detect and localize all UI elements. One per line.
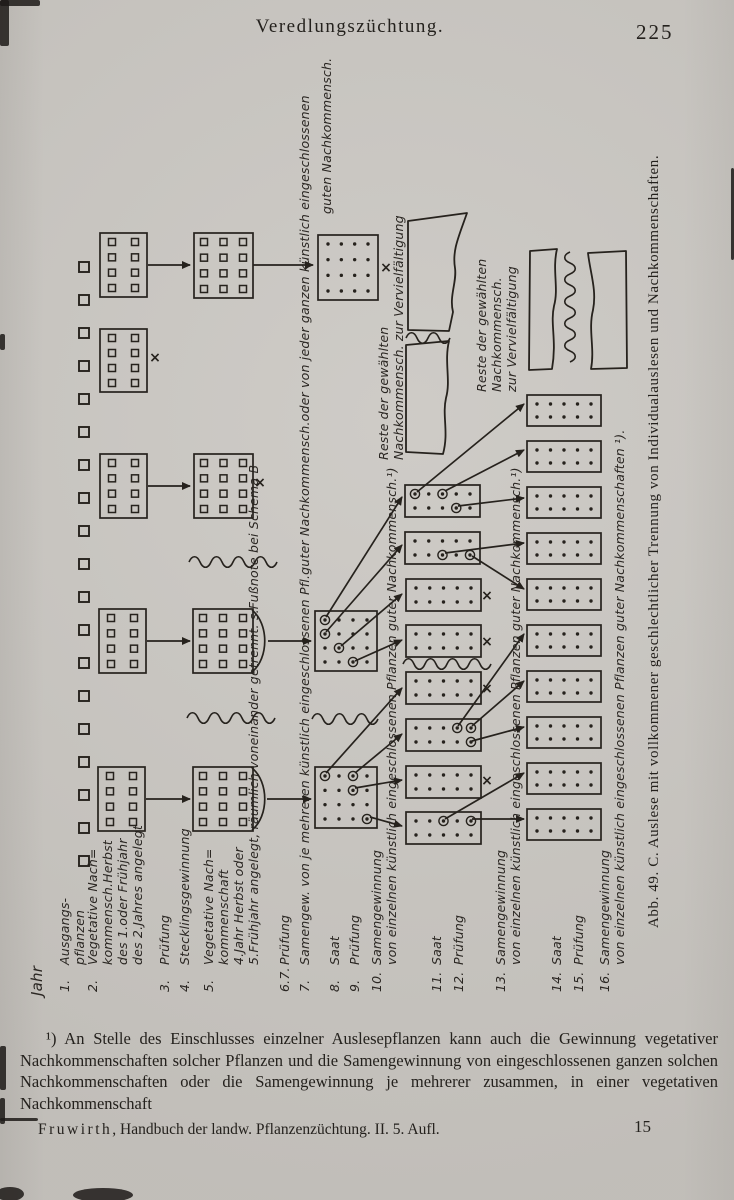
- figure-caption: Abb. 49. C. Auslese mit vollkommener ges…: [646, 155, 663, 928]
- plant-square: [132, 335, 139, 342]
- plant-dot: [428, 819, 431, 822]
- plant-square: [109, 285, 116, 292]
- plant-dot: [366, 242, 369, 245]
- plant-dot: [428, 600, 431, 603]
- plant-dot: [428, 726, 431, 729]
- start-plant-square: [79, 658, 89, 668]
- plant-dot: [455, 553, 458, 556]
- plant-dot: [562, 461, 565, 464]
- trial-plot-box: [315, 767, 377, 828]
- year-number: 8.: [327, 965, 342, 992]
- plant-dot: [576, 724, 579, 727]
- label-lines: Samengewinnungvon einzelnen künstlich ei…: [369, 467, 399, 965]
- plant-dot: [442, 833, 445, 836]
- clone-plot-box: [100, 329, 147, 392]
- plant-square: [132, 269, 139, 276]
- plant-dot: [549, 724, 552, 727]
- year-row-label-1.: 1.Ausgangs-pflanzen: [57, 898, 87, 992]
- label-lines: guten Nachkommensch.: [319, 58, 334, 214]
- plant-dot: [549, 553, 552, 556]
- plant-dot: [589, 691, 592, 694]
- plant-dot: [441, 506, 444, 509]
- selected-plant-circle: [320, 771, 329, 780]
- diagram-annotation-2: Reste der gewähltenNachkommensch.zur Ver…: [474, 259, 519, 392]
- year-number: 3.: [157, 965, 172, 992]
- trial-plot-box: [527, 717, 601, 748]
- plant-square: [220, 254, 227, 261]
- plant-dot: [562, 737, 565, 740]
- plant-square: [132, 506, 139, 513]
- year-number: 15.: [571, 965, 586, 992]
- plant-dot: [549, 494, 552, 497]
- plant-square: [130, 803, 137, 810]
- plant-dot: [414, 740, 417, 743]
- plant-dot: [456, 693, 459, 696]
- plant-dot: [414, 679, 417, 682]
- plant-dot: [340, 289, 343, 292]
- trial-plot-box: [318, 235, 378, 300]
- plant-square: [220, 239, 227, 246]
- label-lines: Jahr: [30, 966, 45, 996]
- plant-square: [131, 661, 138, 668]
- plant-dot: [469, 833, 472, 836]
- selected-plant-circle: [334, 643, 343, 652]
- plant-dot: [456, 819, 459, 822]
- plant-dot: [549, 737, 552, 740]
- plant-dot: [535, 415, 538, 418]
- plant-dot: [442, 773, 445, 776]
- plant-square: [109, 350, 116, 357]
- plant-square: [109, 365, 116, 372]
- plant-dot: [456, 600, 459, 603]
- plant-square: [132, 239, 139, 246]
- plant-dot: [562, 829, 565, 832]
- plant-dot: [576, 540, 579, 543]
- scan-artifact: [73, 1188, 133, 1200]
- book-page-scan: { "paper_color": "#cac7c2", "ink_color":…: [0, 0, 734, 1200]
- plant-dot: [442, 646, 445, 649]
- plant-dot: [535, 494, 538, 497]
- plant-square: [107, 773, 114, 780]
- trial-plot-box: [527, 625, 601, 656]
- multiplication-field-shape: [529, 249, 557, 370]
- plant-dot: [562, 415, 565, 418]
- plant-dot: [535, 507, 538, 510]
- selected-plant-circle: [453, 723, 462, 732]
- plant-dot: [576, 415, 579, 418]
- plant-dot: [326, 242, 329, 245]
- squiggle-separator: [403, 659, 491, 670]
- plant-dot: [562, 586, 565, 589]
- plant-dot: [469, 787, 472, 790]
- plant-dot: [562, 691, 565, 694]
- plant-dot: [535, 448, 538, 451]
- plant-dot: [576, 645, 579, 648]
- plant-dot: [441, 539, 444, 542]
- plant-square: [109, 269, 116, 276]
- plant-square: [130, 773, 137, 780]
- plant-square: [240, 270, 247, 277]
- label-lines: Vegetative Nach=kommensch.Herbstdes 1.od…: [85, 825, 145, 965]
- multiplication-field-shape: [408, 213, 467, 331]
- plant-dot: [428, 632, 431, 635]
- selected-plant-circle: [466, 723, 475, 732]
- plant-square: [109, 254, 116, 261]
- plant-square: [108, 661, 115, 668]
- start-plant-square: [79, 559, 89, 569]
- plant-dot: [456, 740, 459, 743]
- plant-dot: [589, 770, 592, 773]
- plant-dot: [549, 586, 552, 589]
- plant-dot: [469, 819, 472, 822]
- plant-square: [109, 506, 116, 513]
- plant-dot: [413, 553, 416, 556]
- plant-dot: [323, 660, 326, 663]
- plant-dot: [456, 646, 459, 649]
- plant-dot: [351, 646, 354, 649]
- plant-dot: [455, 492, 458, 495]
- plant-dot: [469, 726, 472, 729]
- plant-dot: [562, 402, 565, 405]
- plant-dot: [535, 724, 538, 727]
- year-row-label-16.: 16.Samengewinnungvon einzelnen künstlich…: [597, 429, 627, 992]
- plant-dot: [589, 553, 592, 556]
- plant-dot: [469, 600, 472, 603]
- plant-dot: [340, 274, 343, 277]
- plant-square: [132, 475, 139, 482]
- footnote-marker: ¹): [46, 1029, 56, 1048]
- plant-dot: [351, 803, 354, 806]
- selected-plant-circle: [466, 816, 475, 825]
- selected-plant-circle: [438, 489, 447, 498]
- plant-dot: [323, 803, 326, 806]
- plant-dot: [562, 540, 565, 543]
- year-row-label-2.: 2.Vegetative Nach=kommensch.Herbstdes 1.…: [85, 825, 145, 992]
- plant-square: [109, 490, 116, 497]
- plant-dot: [469, 773, 472, 776]
- plant-dot: [589, 737, 592, 740]
- plant-dot: [442, 632, 445, 635]
- trial-plot-box: [527, 533, 601, 564]
- trial-plot-box: [527, 763, 601, 794]
- plant-square: [240, 239, 247, 246]
- year-row-label-15.: 15.Prüfung: [571, 915, 586, 992]
- label-lines: Ausgangs-pflanzen: [57, 898, 87, 965]
- rejected-cross-mark: ×: [149, 350, 161, 366]
- plant-dot: [337, 660, 340, 663]
- plant-square: [108, 615, 115, 622]
- plant-dot: [326, 289, 329, 292]
- plant-dot: [535, 816, 538, 819]
- plant-dot: [323, 789, 326, 792]
- plant-dot: [576, 599, 579, 602]
- plant-square: [131, 645, 138, 652]
- plant-dot: [576, 507, 579, 510]
- plant-dot: [562, 507, 565, 510]
- multiplication-field-shape: [588, 251, 627, 369]
- selected-plant-circle: [452, 503, 461, 512]
- year-number: 16.: [597, 965, 612, 992]
- selected-plant-circle: [348, 771, 357, 780]
- plant-dot: [351, 632, 354, 635]
- start-plant-square: [79, 460, 89, 470]
- start-plant-square: [79, 262, 89, 272]
- plant-dot: [549, 402, 552, 405]
- plant-dot: [455, 506, 458, 509]
- plant-dot: [442, 787, 445, 790]
- scan-artifact: [0, 1046, 6, 1090]
- plant-dot: [337, 646, 340, 649]
- plant-dot: [351, 789, 354, 792]
- plant-dot: [414, 693, 417, 696]
- year-row-label-10.: 10.Samengewinnungvon einzelnen künstlich…: [369, 467, 399, 992]
- label-lines: Vegetative Nach=kommenschaft4.Jahr Herbs…: [201, 465, 261, 965]
- plant-dot: [428, 833, 431, 836]
- plant-square: [132, 285, 139, 292]
- scan-artifact: [0, 334, 5, 350]
- plant-dot: [535, 737, 538, 740]
- plant-square: [131, 615, 138, 622]
- plant-dot: [562, 724, 565, 727]
- plant-square: [107, 803, 114, 810]
- page-number: 225: [636, 20, 674, 45]
- trial-plot-box: [527, 487, 601, 518]
- plant-dot: [549, 829, 552, 832]
- plant-dot: [456, 726, 459, 729]
- plant-dot: [326, 258, 329, 261]
- plant-dot: [323, 774, 326, 777]
- start-plant-square: [79, 361, 89, 371]
- plant-dot: [589, 507, 592, 510]
- plant-dot: [442, 600, 445, 603]
- plant-dot: [414, 726, 417, 729]
- plant-dot: [468, 492, 471, 495]
- plant-dot: [535, 770, 538, 773]
- start-plant-square: [79, 625, 89, 635]
- plant-dot: [323, 646, 326, 649]
- trial-plot-box: [406, 625, 481, 657]
- start-plant-square: [79, 790, 89, 800]
- plant-dot: [353, 274, 356, 277]
- plant-dot: [337, 774, 340, 777]
- plant-dot: [414, 833, 417, 836]
- clone-plot-box: [194, 233, 253, 298]
- plant-dot: [469, 586, 472, 589]
- selected-plant-circle: [348, 786, 357, 795]
- start-plant-square: [79, 592, 89, 602]
- plant-dot: [535, 783, 538, 786]
- plant-dot: [562, 816, 565, 819]
- plant-dot: [456, 787, 459, 790]
- selected-plant-circle: [320, 629, 329, 638]
- plant-dot: [535, 553, 538, 556]
- plant-dot: [323, 632, 326, 635]
- scan-artifact: [0, 0, 9, 46]
- plant-dot: [337, 789, 340, 792]
- plant-dot: [589, 599, 592, 602]
- plant-square: [107, 788, 114, 795]
- plant-dot: [562, 599, 565, 602]
- plant-dot: [549, 645, 552, 648]
- plant-dot: [337, 632, 340, 635]
- plant-dot: [413, 539, 416, 542]
- plant-dot: [589, 540, 592, 543]
- plant-dot: [549, 415, 552, 418]
- plant-dot: [469, 693, 472, 696]
- rejected-cross-mark: ×: [481, 588, 493, 604]
- plant-dot: [427, 506, 430, 509]
- label-lines: Prüfung: [157, 915, 172, 965]
- start-plant-square: [79, 394, 89, 404]
- plant-dot: [337, 618, 340, 621]
- plant-dot: [442, 819, 445, 822]
- selected-plant-circle: [438, 550, 447, 559]
- plant-dot: [442, 586, 445, 589]
- plant-dot: [549, 507, 552, 510]
- plant-dot: [456, 833, 459, 836]
- year-row-label-5.: 5.Vegetative Nach=kommenschaft4.Jahr Her…: [201, 465, 261, 992]
- plant-dot: [351, 660, 354, 663]
- scanned-paper-background: Veredlungszüchtung. 225 Jahr1.Ausgangs-p…: [0, 0, 734, 1200]
- plant-dot: [535, 540, 538, 543]
- plant-dot: [441, 492, 444, 495]
- plant-dot: [351, 817, 354, 820]
- label-lines: Samengewinnungvon einzelnen künstlich ei…: [597, 429, 627, 965]
- plant-dot: [589, 783, 592, 786]
- plant-dot: [589, 415, 592, 418]
- plant-dot: [576, 691, 579, 694]
- year-number: 10.: [369, 965, 384, 992]
- plant-dot: [535, 599, 538, 602]
- plant-dot: [589, 829, 592, 832]
- plant-square: [132, 380, 139, 387]
- plant-dot: [456, 773, 459, 776]
- plant-square: [109, 380, 116, 387]
- plant-dot: [589, 448, 592, 451]
- plant-dot: [428, 787, 431, 790]
- plant-dot: [576, 632, 579, 635]
- plant-dot: [428, 740, 431, 743]
- trial-plot-box: [406, 579, 481, 611]
- plant-dot: [414, 773, 417, 776]
- diagram-annotation-1: Reste der gewähltenNachkommensch. zur Ve…: [376, 215, 406, 460]
- plant-square: [132, 365, 139, 372]
- plant-dot: [589, 402, 592, 405]
- scan-artifact: [0, 1118, 38, 1121]
- year-number: 2.: [85, 965, 100, 992]
- plant-dot: [469, 632, 472, 635]
- plant-dot: [589, 724, 592, 727]
- plant-dot: [589, 494, 592, 497]
- plant-dot: [323, 618, 326, 621]
- label-lines: Samengew. von je mehreren künstlich eing…: [297, 95, 312, 965]
- clone-plot-box: [100, 233, 147, 297]
- trial-plot-box: [406, 812, 481, 844]
- label-lines: Saat: [429, 936, 444, 965]
- plant-dot: [353, 289, 356, 292]
- plant-square: [130, 788, 137, 795]
- page-header-title: Veredlungszüchtung.: [120, 16, 580, 38]
- plant-dot: [353, 242, 356, 245]
- plant-dot: [326, 274, 329, 277]
- year-number: 14.: [549, 965, 564, 992]
- plant-square: [240, 254, 247, 261]
- squiggle-separator: [406, 333, 450, 344]
- trial-plot-box: [405, 532, 480, 564]
- trial-plot-box: [527, 395, 601, 426]
- sheet-number: 15: [634, 1117, 651, 1137]
- plant-dot: [549, 770, 552, 773]
- multiplication-field-shape: [406, 341, 449, 454]
- plant-dot: [535, 402, 538, 405]
- plant-dot: [589, 586, 592, 589]
- plant-square: [109, 335, 116, 342]
- plant-dot: [414, 632, 417, 635]
- trial-plot-box: [527, 671, 601, 702]
- plant-dot: [456, 632, 459, 635]
- label-lines: Reste der gewähltenNachkommensch.zur Ver…: [474, 259, 519, 392]
- start-plant-square: [79, 295, 89, 305]
- label-lines: Prüfung: [277, 915, 292, 965]
- label-lines: Reste der gewähltenNachkommensch. zur Ve…: [376, 215, 406, 460]
- plant-dot: [366, 274, 369, 277]
- plant-dot: [562, 783, 565, 786]
- plant-dot: [414, 586, 417, 589]
- plant-dot: [441, 553, 444, 556]
- plant-dot: [589, 461, 592, 464]
- plant-dot: [589, 632, 592, 635]
- scan-artifact: [0, 1187, 24, 1200]
- plant-dot: [576, 770, 579, 773]
- plant-square: [201, 286, 208, 293]
- plant-square: [220, 286, 227, 293]
- plant-dot: [414, 646, 417, 649]
- plant-dot: [562, 645, 565, 648]
- plant-dot: [549, 691, 552, 694]
- plant-dot: [535, 632, 538, 635]
- plant-dot: [549, 678, 552, 681]
- label-lines: Prüfung: [347, 915, 362, 965]
- clone-plot-box: [99, 609, 146, 673]
- plant-dot: [428, 693, 431, 696]
- year-row-label-14.: 14.Saat: [549, 936, 564, 992]
- plant-dot: [562, 770, 565, 773]
- plant-dot: [589, 645, 592, 648]
- plant-dot: [549, 599, 552, 602]
- start-plant-square: [79, 526, 89, 536]
- year-row-label-3.: 3.Prüfung: [157, 915, 172, 992]
- selected-plant-circle: [320, 615, 329, 624]
- year-row-label-7.: 7.Samengew. von je mehreren künstlich ei…: [297, 95, 312, 992]
- selected-plant-circle: [466, 737, 475, 746]
- plant-dot: [576, 553, 579, 556]
- footer-title: , Handbuch der landw. Pflanzenzüchtung. …: [112, 1121, 439, 1138]
- year-row-label-4.: 4.Stecklingsgewinnung: [177, 828, 192, 992]
- year-row-label-13.: 13.Samengewinnungvon einzelnen künstlich…: [493, 467, 523, 992]
- start-plant-square: [79, 328, 89, 338]
- rejected-cross-mark: ×: [481, 773, 493, 789]
- year-row-label-12.: 12.Prüfung: [451, 915, 466, 992]
- rejected-cross-mark: ×: [481, 634, 493, 650]
- plant-dot: [576, 737, 579, 740]
- plant-dot: [549, 816, 552, 819]
- squiggle-separator: [565, 252, 576, 362]
- label-lines: Prüfung: [571, 915, 586, 965]
- plant-dot: [576, 448, 579, 451]
- plant-square: [201, 270, 208, 277]
- year-row-label-jahr: Jahr: [30, 966, 45, 996]
- trial-plot-box: [406, 719, 481, 751]
